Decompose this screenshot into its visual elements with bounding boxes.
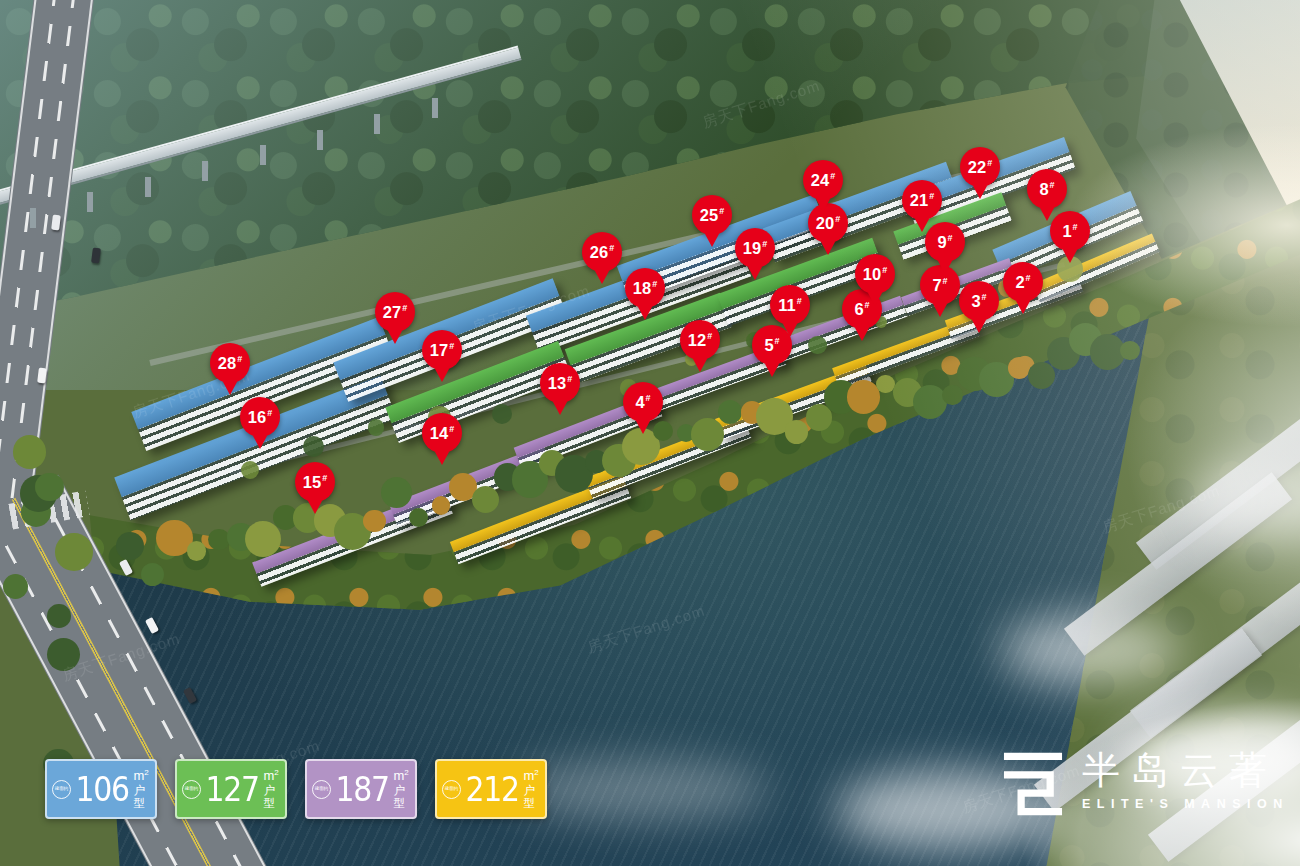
building-number-hash: # — [237, 355, 242, 364]
building-number: 21 — [910, 192, 928, 209]
building-number-hash: # — [1050, 181, 1055, 190]
legend-type-label: 户型 — [133, 784, 149, 810]
project-name-en: ELITE'S MANSION — [1082, 797, 1289, 811]
building-marker-15[interactable]: 15 # — [295, 462, 335, 502]
building-number: 6 — [854, 301, 863, 318]
logo-text-block: 半岛云著 ELITE'S MANSION — [1082, 749, 1289, 811]
building-number: 13 — [548, 375, 566, 392]
building-number: 1 — [1062, 223, 1071, 240]
legend-unit: m2 — [263, 768, 279, 784]
legend-type-label: 户型 — [393, 784, 409, 810]
building-number-hash: # — [1026, 274, 1031, 283]
building-number-hash: # — [267, 409, 272, 418]
building-number: 5 — [764, 337, 773, 354]
building-marker-11[interactable]: 11 # — [770, 285, 810, 325]
building-number: 16 — [248, 409, 266, 426]
building-marker-13[interactable]: 13 # — [540, 363, 580, 403]
legend-unit-block: m2 户型 — [133, 768, 149, 811]
legend-type-label: 户型 — [263, 784, 279, 810]
building-number: 24 — [811, 172, 829, 189]
building-marker-24[interactable]: 24 # — [803, 160, 843, 200]
building-number-hash: # — [449, 342, 454, 351]
building-number: 10 — [863, 266, 881, 283]
building-number: 15 — [303, 474, 321, 491]
building-marker-22[interactable]: 22 # — [960, 147, 1000, 187]
building-number: 22 — [968, 159, 986, 176]
cloud-logo-icon — [1000, 749, 1066, 819]
building-number-hash: # — [929, 192, 934, 201]
building-number: 27 — [383, 304, 401, 321]
building-number: 18 — [633, 280, 651, 297]
project-name-cn: 半岛云著 — [1082, 749, 1289, 793]
legend-unit-block: m2 户型 — [263, 768, 279, 811]
building-number: 2 — [1015, 274, 1024, 291]
building-marker-27[interactable]: 27 # — [375, 292, 415, 332]
building-number: 8 — [1039, 181, 1048, 198]
building-marker-3[interactable]: 3 # — [959, 281, 999, 321]
building-number: 9 — [937, 234, 946, 251]
building-number-hash: # — [987, 159, 992, 168]
building-number: 14 — [430, 425, 448, 442]
building-number-hash: # — [402, 304, 407, 313]
building-number-hash: # — [646, 394, 651, 403]
building-number-hash: # — [775, 337, 780, 346]
building-marker-10[interactable]: 10 # — [855, 254, 895, 294]
area-seal-icon: 建面约 — [52, 780, 71, 799]
legend-area-value: 106 — [76, 769, 129, 809]
legend-unit: m2 — [523, 768, 539, 784]
building-number-hash: # — [762, 240, 767, 249]
building-marker-28[interactable]: 28 # — [210, 343, 250, 383]
legend-unit: m2 — [133, 768, 149, 784]
building-number: 12 — [688, 332, 706, 349]
building-marker-2[interactable]: 2 # — [1003, 262, 1043, 302]
building-number: 26 — [590, 244, 608, 261]
building-marker-12[interactable]: 12 # — [680, 320, 720, 360]
building-number-hash: # — [882, 266, 887, 275]
legend-type-label: 户型 — [523, 784, 539, 810]
legend-unit-block: m2 户型 — [393, 768, 409, 811]
legend-area-value: 187 — [336, 769, 389, 809]
building-number-hash: # — [797, 297, 802, 306]
building-marker-4[interactable]: 4 # — [623, 382, 663, 422]
legend-area-value: 212 — [466, 769, 519, 809]
area-seal-icon: 建面约 — [182, 780, 201, 799]
aerial-site-plan: 房天下Fang.com房天下Fang.com房天下Fang.com房天下Fang… — [0, 0, 1300, 866]
project-logo: 半岛云著 ELITE'S MANSION — [1000, 749, 1289, 819]
legend-area-value: 127 — [206, 769, 259, 809]
area-seal-icon: 建面约 — [312, 780, 331, 799]
building-marker-21[interactable]: 21 # — [902, 180, 942, 220]
building-markers: 1 # 2 # 3 # 4 # 5 # 6 # 7 # 8 # 9 # 10 #… — [0, 0, 1300, 866]
legend-item-127: 建面约 127 m2 户型 — [175, 759, 287, 819]
building-number-hash: # — [835, 215, 840, 224]
building-marker-16[interactable]: 16 # — [240, 397, 280, 437]
building-marker-9[interactable]: 9 # — [925, 222, 965, 262]
building-marker-17[interactable]: 17 # — [422, 330, 462, 370]
building-number-hash: # — [948, 234, 953, 243]
building-number-hash: # — [609, 244, 614, 253]
building-number-hash: # — [719, 207, 724, 216]
building-number-hash: # — [830, 172, 835, 181]
building-marker-18[interactable]: 18 # — [625, 268, 665, 308]
building-marker-19[interactable]: 19 # — [735, 228, 775, 268]
building-number-hash: # — [1073, 223, 1078, 232]
area-seal-icon: 建面约 — [442, 780, 461, 799]
building-number-hash: # — [449, 425, 454, 434]
legend-item-187: 建面约 187 m2 户型 — [305, 759, 417, 819]
building-marker-26[interactable]: 26 # — [582, 232, 622, 272]
building-number-hash: # — [652, 280, 657, 289]
legend-item-212: 建面约 212 m2 户型 — [435, 759, 547, 819]
legend-item-106: 建面约 106 m2 户型 — [45, 759, 157, 819]
building-marker-25[interactable]: 25 # — [692, 195, 732, 235]
building-number: 3 — [971, 293, 980, 310]
building-number-hash: # — [982, 293, 987, 302]
legend-unit: m2 — [393, 768, 409, 784]
building-number-hash: # — [322, 474, 327, 483]
building-number: 19 — [743, 240, 761, 257]
building-marker-1[interactable]: 1 # — [1050, 211, 1090, 251]
building-number-hash: # — [707, 332, 712, 341]
building-number: 25 — [700, 207, 718, 224]
building-marker-8[interactable]: 8 # — [1027, 169, 1067, 209]
building-marker-14[interactable]: 14 # — [422, 413, 462, 453]
building-number: 4 — [635, 394, 644, 411]
building-number: 28 — [218, 355, 236, 372]
building-number-hash: # — [567, 375, 572, 384]
building-number: 11 — [778, 297, 795, 314]
building-number: 17 — [430, 342, 448, 359]
legend-unit-block: m2 户型 — [523, 768, 539, 811]
